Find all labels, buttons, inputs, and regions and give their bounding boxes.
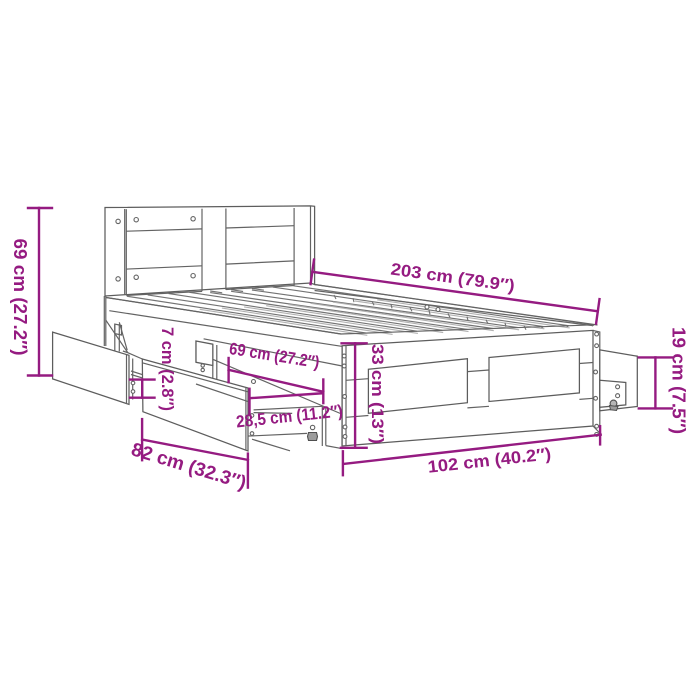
svg-text:33 cm (13″): 33 cm (13″) — [368, 344, 387, 444]
svg-text:19 cm (7.5″): 19 cm (7.5″) — [669, 327, 690, 434]
svg-text:69 cm (27.2″): 69 cm (27.2″) — [10, 239, 31, 356]
svg-text:7 cm (2.8″): 7 cm (2.8″) — [158, 327, 176, 411]
